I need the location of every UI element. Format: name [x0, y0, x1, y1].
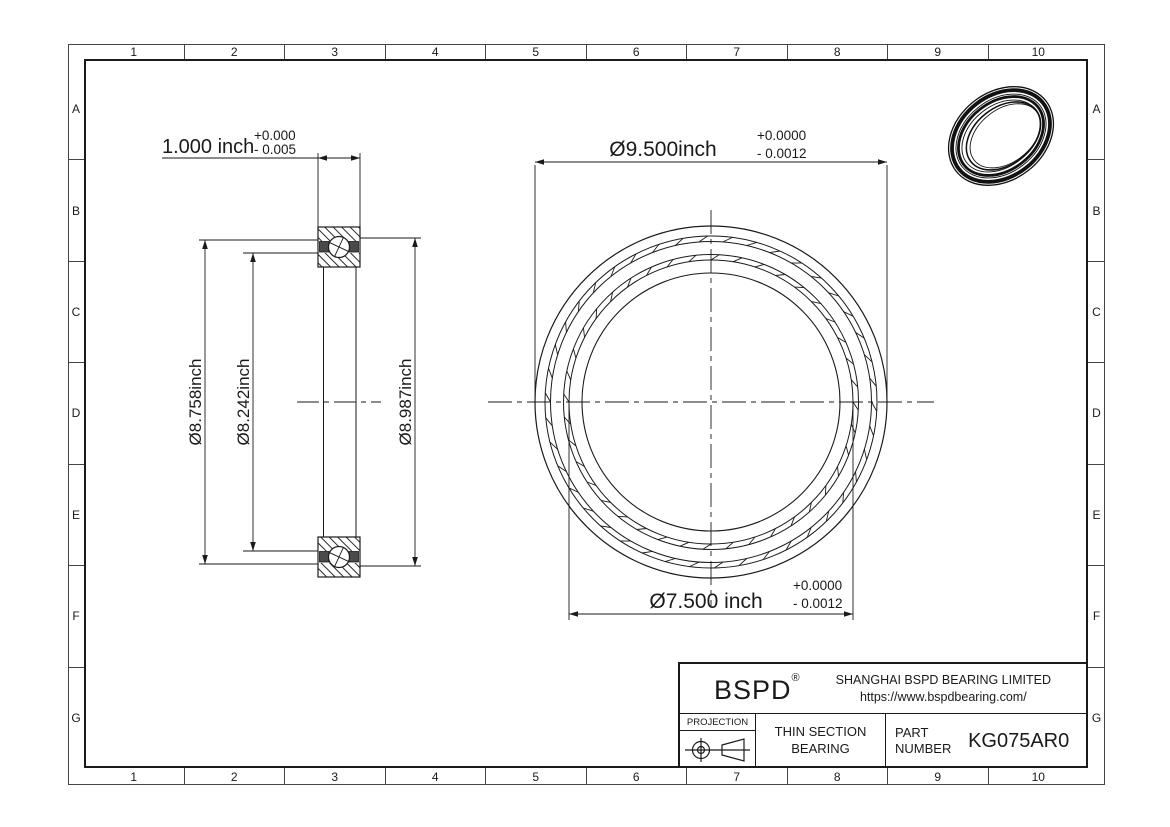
seal-left: [320, 552, 330, 563]
logo-text: BSPD: [714, 675, 792, 705]
product-title-cell: THIN SECTION BEARING: [756, 714, 886, 768]
bore-dim-tol-plus: +0.0000: [793, 578, 842, 593]
bore-dim-tol-minus: - 0.0012: [793, 596, 843, 611]
od-dim-tol-minus: - 0.0012: [757, 146, 807, 161]
engineering-drawing-page: { "drawing": { "grid": { "columns": ["1"…: [0, 0, 1170, 827]
seal-left: [320, 242, 330, 253]
product-line2: BEARING: [791, 741, 850, 758]
od-dim-tol-plus: +0.0000: [757, 128, 806, 143]
part-number-cell: PART NUMBER KG075AR0: [886, 714, 1086, 768]
company-website: https://www.bspdbearing.com/: [801, 689, 1086, 706]
outer-ring-section-top: [318, 227, 360, 267]
side-section-view: [297, 227, 381, 577]
title-block-company-row: BSPD® SHANGHAI BSPD BEARING LIMITED http…: [680, 664, 1086, 714]
seal-right: [349, 552, 359, 563]
first-angle-projection-icon: [684, 735, 752, 765]
company-info: SHANGHAI BSPD BEARING LIMITED https://ww…: [801, 672, 1086, 706]
seal-right: [349, 242, 359, 253]
bore-dim-text: Ø7.500 inch: [649, 590, 762, 613]
product-line1: THIN SECTION: [775, 724, 867, 741]
part-number-value: KG075AR0: [951, 730, 1086, 753]
width-dim-text: 1.000 inch: [162, 136, 254, 158]
front-view: [488, 210, 934, 606]
dim-8987-text: Ø8.987inch: [396, 359, 415, 446]
width-dim-tol-plus: +0.000: [254, 128, 296, 143]
outer-ring-section-bottom: [318, 537, 360, 577]
part-number-label: PART NUMBER: [886, 725, 951, 758]
company-logo: BSPD®: [714, 672, 801, 706]
title-block-detail-row: PROJECTION THIN SECTION BEARING PART NUM…: [680, 714, 1086, 768]
projection-cell: PROJECTION: [680, 714, 756, 768]
dim-8758-text: Ø8.758inch: [186, 359, 205, 446]
title-block: BSPD® SHANGHAI BSPD BEARING LIMITED http…: [678, 662, 1088, 768]
company-name: SHANGHAI BSPD BEARING LIMITED: [801, 672, 1086, 689]
width-dim-tol-minus: - 0.005: [254, 142, 296, 157]
od-dim-text: Ø9.500inch: [609, 138, 716, 161]
projection-label: PROJECTION: [680, 714, 755, 731]
registered-mark: ®: [792, 672, 801, 684]
dimension-texts: 1.000 inch +0.000 - 0.005 Ø9.500inch +0.…: [162, 128, 843, 613]
width-dimension: [162, 153, 360, 227]
projection-symbol-area: [680, 731, 755, 768]
dim-8242-text: Ø8.242inch: [234, 359, 253, 446]
isometric-bearing-view: [929, 66, 1073, 206]
